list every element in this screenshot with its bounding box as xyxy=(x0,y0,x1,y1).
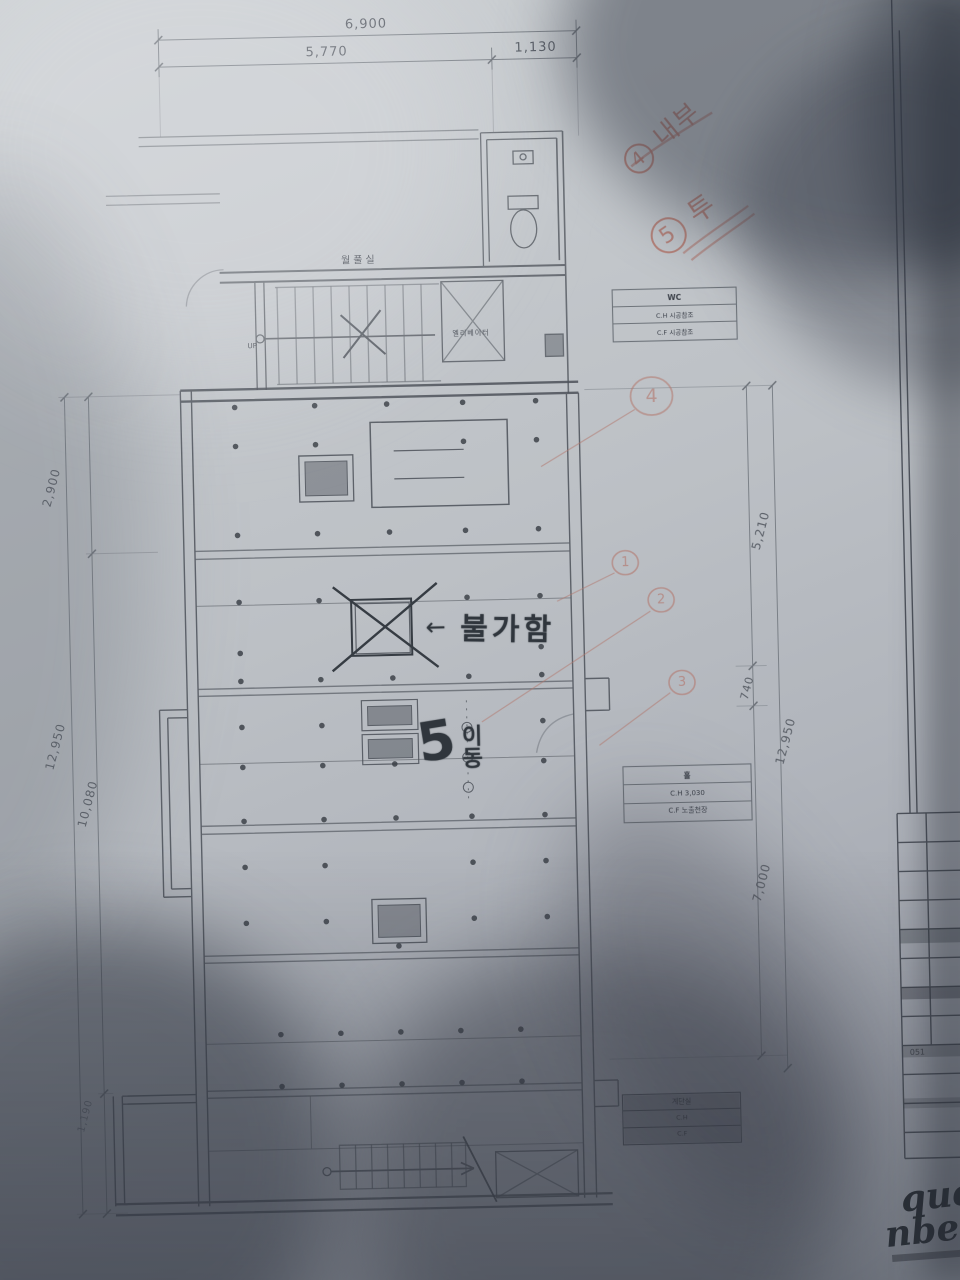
wc-table-ch: C.H 시공참조 xyxy=(656,309,694,320)
room-label-elevator: 엘리베이터 xyxy=(452,328,489,339)
spec-tables xyxy=(604,287,759,1145)
lower-table-cf: C.F xyxy=(677,1129,688,1137)
red-marker-4: 4 xyxy=(645,385,658,407)
hall-table-title: 홀 xyxy=(684,770,691,781)
wc-table-title: WC xyxy=(667,293,681,302)
dim-top-right: 1,130 xyxy=(514,40,557,56)
wc-table-cf: C.F 시공참조 xyxy=(657,326,694,337)
dim-top-left: 5,770 xyxy=(305,44,348,60)
titleblock-code: 051 xyxy=(910,1048,925,1057)
red-pen-strokes xyxy=(468,112,766,748)
room-label-whirlpool: 월풀실 xyxy=(341,251,378,267)
pencil-note-not-possible: 불가함 xyxy=(460,604,555,649)
upper-block-walls xyxy=(105,128,569,403)
lower-table-ch: C.H xyxy=(676,1113,688,1121)
hall-walls xyxy=(97,381,621,1215)
lower-table-title: 계단실 xyxy=(672,1096,692,1106)
photo-of-ceiling-plan: 6,900 5,770 1,130 2,900 12,950 10,080 1,… xyxy=(0,0,960,1280)
hall-table-cf: C.F 노출천장 xyxy=(668,805,707,816)
red-marker-2: 2 xyxy=(657,592,666,607)
drawing-sheet: 6,900 5,770 1,130 2,900 12,950 10,080 1,… xyxy=(0,0,960,1280)
hall-table-ch: C.H 3,030 xyxy=(670,789,705,798)
ceiling-fixtures xyxy=(298,419,519,945)
pencil-move-text: 이동 xyxy=(459,726,486,770)
pencil-arrow: ← xyxy=(425,613,446,641)
red-marker-1: 1 xyxy=(621,555,630,570)
dim-top-total: 6,900 xyxy=(345,16,388,32)
red-marker-3: 3 xyxy=(678,675,687,690)
stair-up-label: UP xyxy=(248,342,258,350)
title-block xyxy=(863,0,960,1262)
